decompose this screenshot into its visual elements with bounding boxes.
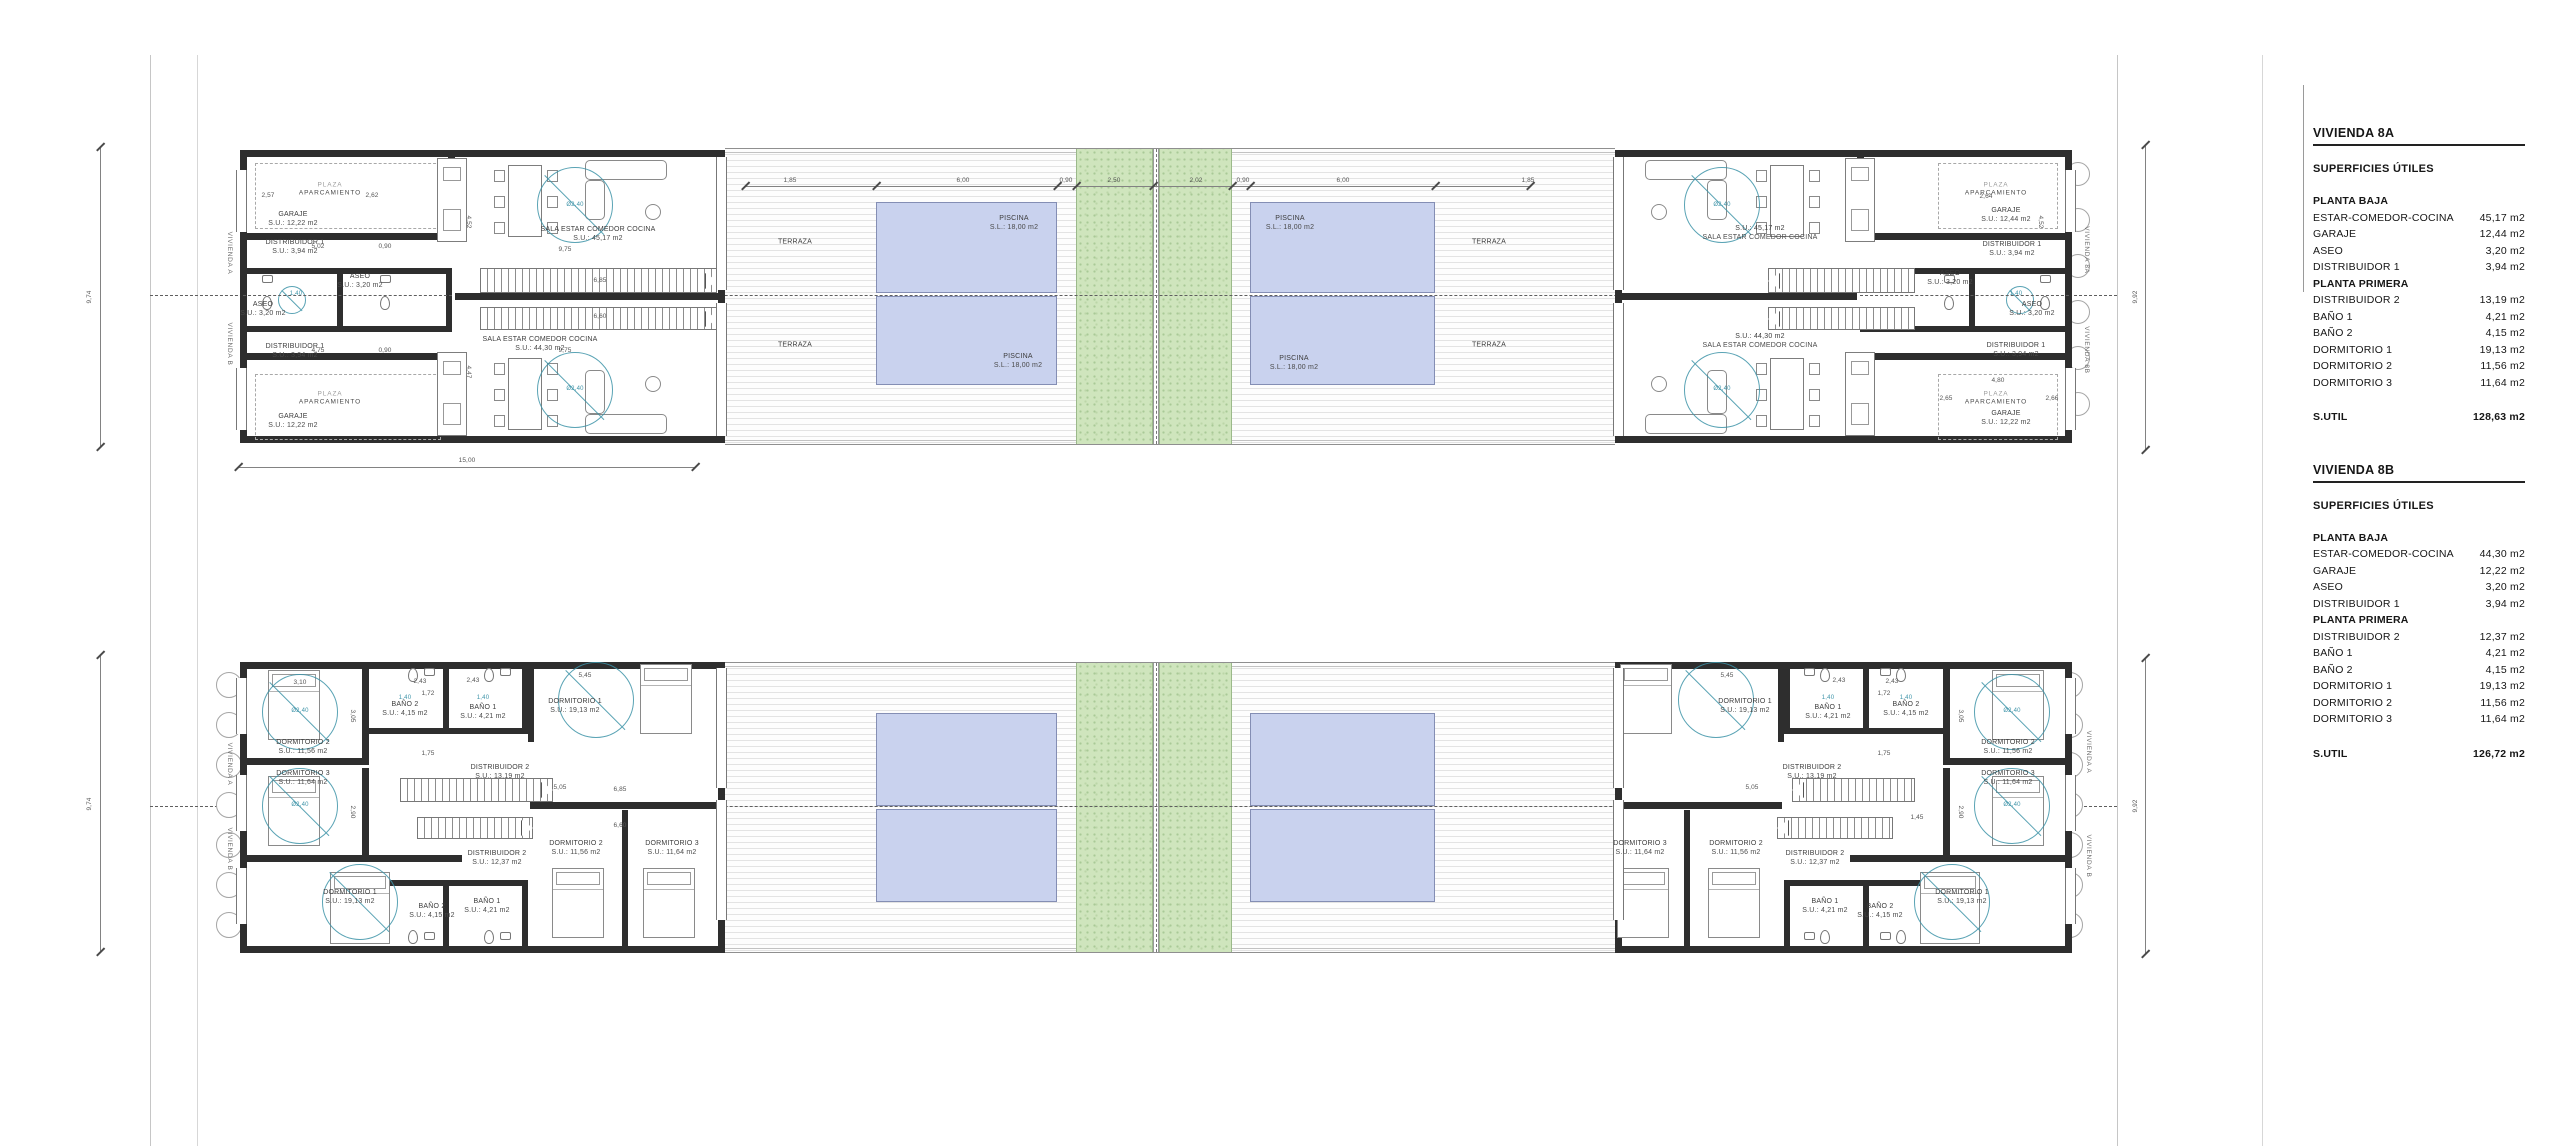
label-sala-estar: SALA ESTAR COMEDOR COCINAS.U.: 44,30 m2	[483, 335, 598, 353]
sink	[424, 668, 435, 676]
label-dormitorio: DORMITORIO 2S.U.: 11,56 m2	[1981, 738, 2035, 756]
total-label: S.UTIL	[2313, 409, 2347, 426]
room-area: 19,13 m2	[2480, 678, 2525, 695]
room-area: 44,30 m2	[2480, 546, 2525, 563]
dim-label: 0,90	[1059, 177, 1072, 185]
sink	[2040, 275, 2051, 283]
label-piscina: PISCINAS.L.: 18,00 m2	[990, 214, 1038, 232]
chair	[1756, 363, 1767, 375]
turning-circle-label: Ø2,40	[291, 802, 308, 810]
dimension-line	[100, 655, 101, 953]
window	[236, 868, 247, 924]
party-wall-dashed-line	[243, 295, 452, 296]
green-strip	[1159, 149, 1232, 444]
bed	[1708, 868, 1760, 938]
label-garaje: GARAJES.U.: 12,22 m2	[268, 412, 318, 430]
toilet	[408, 930, 418, 944]
pool	[876, 713, 1057, 806]
bed	[552, 868, 604, 938]
dim-label: 4,52	[2036, 215, 2044, 228]
dim-label: 9,92	[2132, 799, 2140, 812]
dim-label-accessible: 1,40	[399, 695, 411, 703]
wall	[530, 802, 725, 809]
legend-row: DISTRIBUIDOR 212,37 m2	[2313, 629, 2525, 646]
total-value: 126,72 m2	[2473, 746, 2525, 763]
label-dormitorio: DORMITORIO 1S.U.: 19,13 m2	[548, 697, 602, 715]
label-dormitorio: DORMITORIO 3S.U.: 11,64 m2	[645, 839, 699, 857]
dim-label: 2,90	[348, 805, 356, 818]
chair	[494, 170, 505, 182]
room-name: DORMITORIO 3	[2313, 711, 2392, 728]
room-area: 12,44 m2	[2480, 226, 2525, 243]
dim-label: 9,92	[2132, 290, 2140, 303]
dim-label: 5,05	[1745, 784, 1758, 792]
turning-circle-label: Ø2,40	[566, 386, 583, 394]
label-distribuidor: DISTRIBUIDOR 2S.U.: 13,19 m2	[471, 763, 530, 781]
label-vivienda-b: VIVIENDA B	[225, 827, 233, 870]
total-value: 128,63 m2	[2473, 409, 2525, 426]
chair	[1756, 415, 1767, 427]
dim-label: 6,60	[613, 822, 626, 830]
label-distribuidor: DISTRIBUIDOR 2S.U.: 12,37 m2	[468, 849, 527, 867]
toilet	[484, 668, 494, 682]
chair	[1809, 389, 1820, 401]
dim-label: 1,45	[1910, 814, 1923, 822]
toilet	[1896, 930, 1906, 944]
legend-row: DISTRIBUIDOR 13,94 m2	[2313, 596, 2525, 613]
label-vivienda-a: VIVIENDA A	[225, 743, 233, 786]
chair	[1809, 196, 1820, 208]
room-name: DORMITORIO 1	[2313, 678, 2392, 695]
sink	[500, 668, 511, 676]
room-name: GARAJE	[2313, 226, 2356, 243]
sink	[1880, 668, 1891, 676]
dim-label: 9,75	[558, 246, 571, 254]
label-dormitorio: DORMITORIO 2S.U.: 11,56 m2	[1709, 839, 1763, 857]
dim-label: 2,65	[1939, 395, 1952, 403]
room-name: DORMITORIO 3	[2313, 375, 2392, 392]
dim-label: 3,05	[348, 709, 356, 722]
legend-total-row: S.UTIL126,72 m2	[2313, 746, 2525, 763]
wall	[622, 810, 628, 953]
room-area: 3,94 m2	[2486, 596, 2525, 613]
kitchen-island	[1845, 158, 1875, 242]
glazed-wall	[716, 668, 727, 788]
sink	[424, 932, 435, 940]
room-area: 3,94 m2	[2486, 259, 2525, 276]
room-area: 11,64 m2	[2480, 375, 2525, 392]
room-area: 4,21 m2	[2486, 645, 2525, 662]
dim-label: 1,75	[421, 750, 434, 758]
wall	[1850, 855, 2072, 862]
side-table	[645, 204, 661, 220]
label-aseo: ASEOS.U.: 3,20 m2	[2009, 300, 2054, 318]
legend-row: DORMITORIO 311,64 m2	[2313, 711, 2525, 728]
floor-plan-sheet: GARAJES.U.: 12,22 m2GARAJES.U.: 12,22 m2…	[0, 0, 2560, 1146]
room-area: 45,17 m2	[2480, 210, 2525, 227]
stairs	[1768, 307, 1915, 330]
legend-unit-8a: VIVIENDA 8A SUPERFICIES ÚTILES PLANTA BA…	[2313, 126, 2525, 426]
wall	[1943, 768, 1950, 858]
dim-label: 4,80	[1991, 377, 2004, 385]
glazed-wall	[1613, 303, 1624, 436]
dim-label: 6,60	[593, 313, 606, 321]
label-vivienda-8a: VIVIENDA 8A	[2082, 226, 2090, 273]
wall	[522, 880, 528, 952]
side-table	[645, 376, 661, 392]
dim-label: 0,90	[378, 243, 391, 251]
window	[2065, 868, 2076, 924]
label-distribuidor: DISTRIBUIDOR 1S.U.: 3,94 m2	[1987, 341, 2046, 359]
label-distribuidor: DISTRIBUIDOR 2S.U.: 13,19 m2	[1783, 763, 1842, 781]
dim-label-accessible: 1,40	[1822, 695, 1834, 703]
legend-row: DORMITORIO 311,64 m2	[2313, 375, 2525, 392]
wall	[1684, 810, 1690, 953]
pool	[1250, 713, 1435, 806]
window	[236, 678, 247, 734]
sink	[1804, 932, 1815, 940]
glazed-wall	[1613, 668, 1624, 788]
wall	[1784, 662, 1790, 734]
legend-title: VIVIENDA 8A	[2313, 126, 2525, 146]
legend-total-row: S.UTIL128,63 m2	[2313, 409, 2525, 426]
room-name: DISTRIBUIDOR 2	[2313, 292, 2400, 309]
side-table	[1651, 204, 1667, 220]
room-name: DISTRIBUIDOR 1	[2313, 596, 2400, 613]
dining-table	[1770, 358, 1804, 430]
stairs	[1777, 817, 1893, 839]
green-strip	[1159, 663, 1232, 952]
room-name: GARAJE	[2313, 563, 2356, 580]
legend-unit-8b: VIVIENDA 8B SUPERFICIES ÚTILES PLANTA BA…	[2313, 463, 2525, 763]
kitchen-island	[1845, 352, 1875, 436]
dimension-line	[238, 467, 696, 468]
room-name: ESTAR-COMEDOR-COCINA	[2313, 546, 2454, 563]
label-bano: BAÑO 1S.U.: 4,21 m2	[1805, 703, 1850, 721]
wall	[455, 293, 725, 300]
wall	[362, 768, 369, 858]
dim-label: 0,90	[1236, 177, 1249, 185]
wall	[1863, 662, 1869, 728]
garage-door	[236, 368, 247, 430]
dim-label: 2,90	[1956, 805, 1964, 818]
dim-label: 4,52	[464, 215, 472, 228]
wall	[1615, 802, 1782, 809]
bed	[1620, 664, 1672, 734]
label-sala-estar: SALA ESTAR COMEDOR COCINAS.U.: 45,17 m2	[541, 225, 656, 243]
legend-section-heading: PLANTA PRIMERA	[2313, 612, 2525, 629]
legend-row: DORMITORIO 119,13 m2	[2313, 342, 2525, 359]
legend-row: BAÑO 24,15 m2	[2313, 662, 2525, 679]
chair	[494, 389, 505, 401]
label-bano: BAÑO 2S.U.: 4,15 m2	[409, 902, 454, 920]
green-strip	[1076, 663, 1153, 952]
label-aseo: ASEOS.U.: 3,20 m2	[240, 300, 285, 318]
label-plaza-aparcamiento: PLAZAAPARCAMIENTO	[299, 182, 361, 199]
toilet	[380, 296, 390, 310]
dim-label: 1,85	[1521, 177, 1534, 185]
sink	[500, 932, 511, 940]
label-terraza: TERRAZA	[778, 340, 812, 349]
label-piscina: PISCINAS.L.: 18,00 m2	[1266, 214, 1314, 232]
toilet	[1820, 668, 1830, 682]
glazed-wall	[716, 303, 727, 436]
dim-label: 6,00	[1336, 177, 1349, 185]
dim-label: 2,43	[1832, 677, 1845, 685]
room-name: BAÑO 1	[2313, 645, 2353, 662]
legend-row: ASEO3,20 m2	[2313, 243, 2525, 260]
room-name: ASEO	[2313, 243, 2343, 260]
dim-label: 2,57	[261, 192, 274, 200]
label-dormitorio: DORMITORIO 3S.U.: 11,64 m2	[1981, 769, 2035, 787]
legend-row: DISTRIBUIDOR 13,94 m2	[2313, 259, 2525, 276]
dim-label: 9,74	[86, 290, 94, 303]
dimension-line	[2145, 145, 2146, 450]
wall	[240, 855, 462, 862]
room-name: DORMITORIO 2	[2313, 358, 2392, 375]
label-dormitorio: DORMITORIO 3S.U.: 11,64 m2	[1613, 839, 1667, 857]
label-vivienda-8b: VIVIENDA 8B	[2082, 326, 2090, 373]
room-area: 19,13 m2	[2480, 342, 2525, 359]
garage-door	[2065, 170, 2076, 232]
room-area: 4,15 m2	[2486, 662, 2525, 679]
chair	[1809, 415, 1820, 427]
label-aseo: ASEOS.U.: 3,20 m2	[337, 272, 382, 290]
wall	[362, 668, 369, 760]
legend-section-heading: PLANTA BAJA	[2313, 193, 2525, 210]
dim-label: 2,43	[466, 677, 479, 685]
toilet	[484, 930, 494, 944]
dim-label: 9,75	[558, 347, 571, 355]
label-plaza-aparcamiento: PLAZAAPARCAMIENTO	[1965, 391, 2027, 408]
stairs	[417, 817, 533, 839]
dim-label: 5,02	[311, 243, 324, 251]
room-area: 12,22 m2	[2480, 563, 2525, 580]
turning-circle-label: Ø2,40	[566, 202, 583, 210]
room-name: ASEO	[2313, 579, 2343, 596]
room-name: BAÑO 1	[2313, 309, 2353, 326]
kitchen-island	[437, 352, 467, 436]
legend-row: DISTRIBUIDOR 213,19 m2	[2313, 292, 2525, 309]
dim-label-accessible: 1,40	[477, 695, 489, 703]
sink	[262, 275, 273, 283]
label-sala-estar: S.U.: 45,17 m2SALA ESTAR COMEDOR COCINA	[1703, 224, 1818, 242]
turning-circle-label: Ø2,40	[291, 708, 308, 716]
room-area: 4,15 m2	[2486, 325, 2525, 342]
label-dormitorio: DORMITORIO 3S.U.: 11,64 m2	[276, 769, 330, 787]
party-wall-dashed-line	[1860, 295, 2069, 296]
legend-row: ASEO3,20 m2	[2313, 579, 2525, 596]
dimension-line	[2145, 658, 2146, 955]
dim-label: 5,05	[553, 784, 566, 792]
window	[236, 775, 247, 831]
dim-label: 2,50	[1107, 177, 1120, 185]
dim-label: 6,85	[613, 786, 626, 794]
side-table	[1651, 376, 1667, 392]
room-name: DISTRIBUIDOR 2	[2313, 629, 2400, 646]
wall	[1615, 293, 1857, 300]
label-dormitorio: DORMITORIO 1S.U.: 19,13 m2	[1718, 697, 1772, 715]
legend-section-heading: PLANTA PRIMERA	[2313, 276, 2525, 293]
wall	[240, 758, 369, 765]
glazed-wall	[1613, 157, 1624, 290]
label-garaje: GARAJES.U.: 12,22 m2	[268, 210, 318, 228]
room-area: 3,20 m2	[2486, 243, 2525, 260]
wall	[446, 268, 452, 332]
label-garaje: GARAJES.U.: 12,44 m2	[1981, 206, 2031, 224]
wall	[528, 662, 534, 742]
chair	[494, 363, 505, 375]
bed	[640, 664, 692, 734]
room-area: 13,19 m2	[2480, 292, 2525, 309]
legend-subtitle: SUPERFICIES ÚTILES	[2313, 163, 2525, 175]
garage-door	[236, 170, 247, 232]
room-name: BAÑO 2	[2313, 662, 2353, 679]
label-vivienda-b: VIVIENDA B	[2084, 834, 2092, 877]
dim-label: 6,00	[956, 177, 969, 185]
label-vivienda-a: VIVIENDA A	[225, 232, 233, 275]
label-distribuidor: DISTRIBUIDOR 2S.U.: 12,37 m2	[1786, 849, 1845, 867]
dim-label: 2,64	[1979, 193, 1992, 201]
room-name: BAÑO 2	[2313, 325, 2353, 342]
green-strip	[1076, 149, 1153, 444]
dim-label: 4,75	[311, 347, 324, 355]
dim-label-accessible: 1,40	[290, 291, 302, 299]
wall	[1943, 758, 2072, 765]
dim-label-accessible: 1,40	[2010, 291, 2022, 299]
pool	[876, 296, 1057, 385]
label-sala-estar: S.U.: 44,30 m2SALA ESTAR COMEDOR COCINA	[1703, 332, 1818, 350]
toilet	[1944, 296, 1954, 310]
room-area: 3,20 m2	[2486, 579, 2525, 596]
chair	[1809, 363, 1820, 375]
total-label: S.UTIL	[2313, 746, 2347, 763]
pool	[876, 809, 1057, 902]
toilet	[1820, 930, 1830, 944]
dim-label: 9,74	[86, 797, 94, 810]
label-dormitorio: DORMITORIO 2S.U.: 11,56 m2	[549, 839, 603, 857]
label-bano: BAÑO 1S.U.: 4,21 m2	[464, 897, 509, 915]
kitchen-island	[437, 158, 467, 242]
wall	[443, 662, 449, 728]
dim-label: 2,43	[1885, 678, 1898, 686]
legend-section-heading: PLANTA BAJA	[2313, 530, 2525, 547]
turning-circle-label: Ø2,40	[1713, 386, 1730, 394]
stairs	[1792, 778, 1915, 802]
label-distribuidor: DISTRIBUIDOR 1S.U.: 3,94 m2	[1983, 240, 2042, 258]
label-vivienda-a: VIVIENDA A	[2084, 731, 2092, 774]
legend-row: DORMITORIO 119,13 m2	[2313, 678, 2525, 695]
dim-label: 4,47	[464, 365, 472, 378]
room-area: 4,21 m2	[2486, 309, 2525, 326]
label-terraza: TERRAZA	[778, 237, 812, 246]
dim-label: 1,72	[421, 690, 434, 698]
glazed-wall	[716, 800, 727, 920]
label-bano: BAÑO 1S.U.: 4,21 m2	[1802, 897, 1847, 915]
dim-label: 2,62	[365, 192, 378, 200]
turning-circle-label: Ø2,40	[2003, 708, 2020, 716]
label-dormitorio: DORMITORIO 1S.U.: 19,13 m2	[323, 888, 377, 906]
bed	[643, 868, 695, 938]
dim-label: 2,02	[1189, 177, 1202, 185]
turning-circle-label: Ø2,40	[2003, 802, 2020, 810]
dimension-line	[100, 147, 101, 447]
legend-subtitle: SUPERFICIES ÚTILES	[2313, 500, 2525, 512]
dim-label: 3,05	[1956, 709, 1964, 722]
dim-label: 1,75	[1877, 750, 1890, 758]
label-terraza: TERRAZA	[1472, 340, 1506, 349]
room-area: 11,56 m2	[2480, 695, 2525, 712]
legend-row: DORMITORIO 211,56 m2	[2313, 358, 2525, 375]
room-name: DORMITORIO 1	[2313, 342, 2392, 359]
glazed-wall	[1613, 800, 1624, 920]
wall	[1778, 662, 1784, 742]
dim-label: 0,90	[378, 347, 391, 355]
window	[2065, 775, 2076, 831]
label-dormitorio: DORMITORIO 2S.U.: 11,56 m2	[276, 738, 330, 756]
stairs	[1768, 268, 1915, 293]
room-name: ESTAR-COMEDOR-COCINA	[2313, 210, 2454, 227]
chair	[494, 415, 505, 427]
dim-label: 2,43	[413, 678, 426, 686]
window	[2065, 678, 2076, 734]
axis-dashed-line	[1156, 663, 1157, 952]
sink	[1880, 932, 1891, 940]
label-piscina: PISCINAS.L.: 18,00 m2	[1270, 354, 1318, 372]
dimension-line	[745, 186, 1530, 187]
garage-door	[2065, 368, 2076, 430]
legend-row: BAÑO 24,15 m2	[2313, 325, 2525, 342]
dim-label: 6,85	[593, 277, 606, 285]
chair	[494, 196, 505, 208]
label-garaje: GARAJES.U.: 12,22 m2	[1981, 409, 2031, 427]
dim-label: 5,45	[1720, 672, 1733, 680]
room-area: 12,37 m2	[2480, 629, 2525, 646]
label-terraza: TERRAZA	[1472, 237, 1506, 246]
wall	[1943, 668, 1950, 760]
dim-label: 5,45	[578, 672, 591, 680]
pool	[1250, 809, 1435, 902]
label-plaza-aparcamiento: PLAZAAPARCAMIENTO	[299, 391, 361, 408]
glazed-wall	[716, 157, 727, 290]
dim-label: 1,85	[783, 177, 796, 185]
label-aseo: ASEOS.U.: 3,20 m2	[1927, 269, 1972, 287]
room-area: 11,64 m2	[2480, 711, 2525, 728]
legend-row: GARAJE12,44 m2	[2313, 226, 2525, 243]
axis-dashed-line	[1156, 149, 1157, 444]
label-vivienda-b: VIVIENDA B	[225, 322, 233, 365]
bed	[1617, 868, 1669, 938]
chair	[1809, 170, 1820, 182]
wall	[1784, 880, 1790, 952]
label-plaza-aparcamiento: PLAZAAPARCAMIENTO	[1965, 182, 2027, 199]
wall	[243, 326, 452, 332]
chair	[1756, 170, 1767, 182]
chair	[494, 222, 505, 234]
legend-title: VIVIENDA 8B	[2313, 463, 2525, 483]
stairs	[400, 778, 553, 802]
sink	[1804, 668, 1815, 676]
wall	[368, 728, 528, 734]
room-name: DORMITORIO 2	[2313, 695, 2392, 712]
dim-label: 1,72	[1877, 690, 1890, 698]
legend-row: DORMITORIO 211,56 m2	[2313, 695, 2525, 712]
room-area: 11,56 m2	[2480, 358, 2525, 375]
turning-circle-label: Ø2,40	[1713, 202, 1730, 210]
legend-panel: VIVIENDA 8A SUPERFICIES ÚTILES PLANTA BA…	[2313, 126, 2525, 762]
legend-row: ESTAR-COMEDOR-COCINA45,17 m2	[2313, 210, 2525, 227]
wall	[1784, 728, 1944, 734]
